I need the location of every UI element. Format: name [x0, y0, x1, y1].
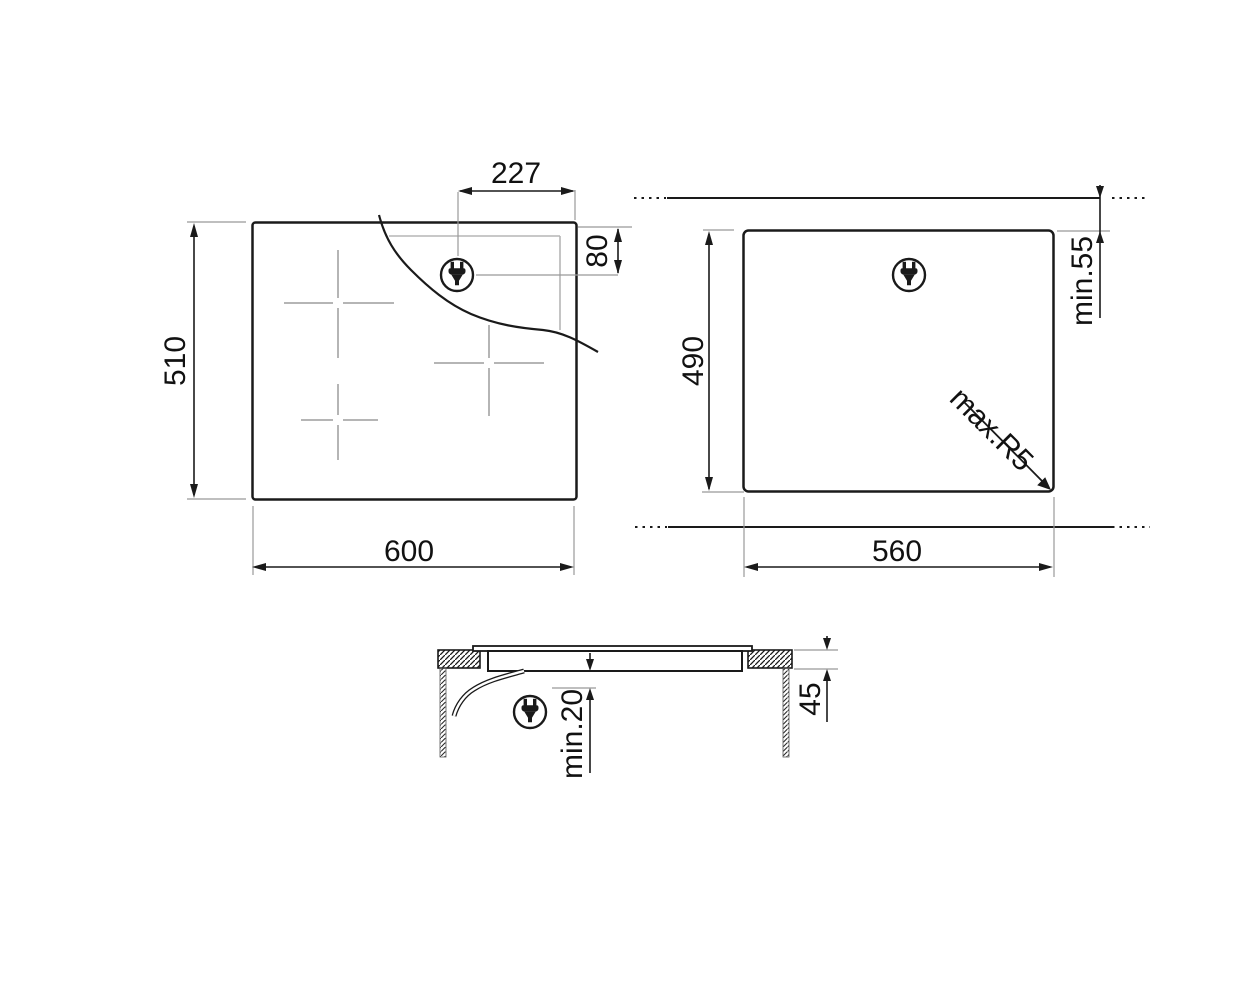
hob-outline — [253, 223, 577, 500]
dim-label-rear-clearance: min.55 — [1068, 236, 1098, 326]
dim-label-cutout-width: 560 — [872, 537, 922, 567]
top-view-group — [187, 187, 632, 575]
power-plug-icon — [893, 259, 925, 291]
dim-label-bottom-clearance: min.20 — [558, 689, 588, 779]
power-plug-icon — [441, 259, 473, 291]
cabinet-wall-right — [783, 668, 789, 757]
hob-body-profile — [488, 651, 742, 671]
side-view-group — [438, 636, 838, 773]
dim-label-cutout-height: 490 — [679, 336, 709, 386]
power-plug-icon — [514, 696, 546, 728]
cabinet-wall-left — [440, 668, 446, 757]
dim-510 — [187, 222, 246, 499]
drawing-canvas — [0, 0, 1250, 1000]
hob-installation-diagram: 227 80 510 600 490 560 min.55 max.R5 45 … — [0, 0, 1250, 1000]
worktop-section-left — [438, 650, 480, 668]
dim-227 — [458, 187, 575, 220]
dim-label-plug-offset-x: 227 — [491, 159, 541, 189]
worktop-section-right — [748, 650, 792, 668]
dim-label-hob-width: 600 — [384, 537, 434, 567]
dim-label-recess-depth: 45 — [796, 682, 826, 715]
dim-label-hob-height: 510 — [161, 336, 191, 386]
dim-label-plug-offset-y: 80 — [583, 234, 613, 267]
